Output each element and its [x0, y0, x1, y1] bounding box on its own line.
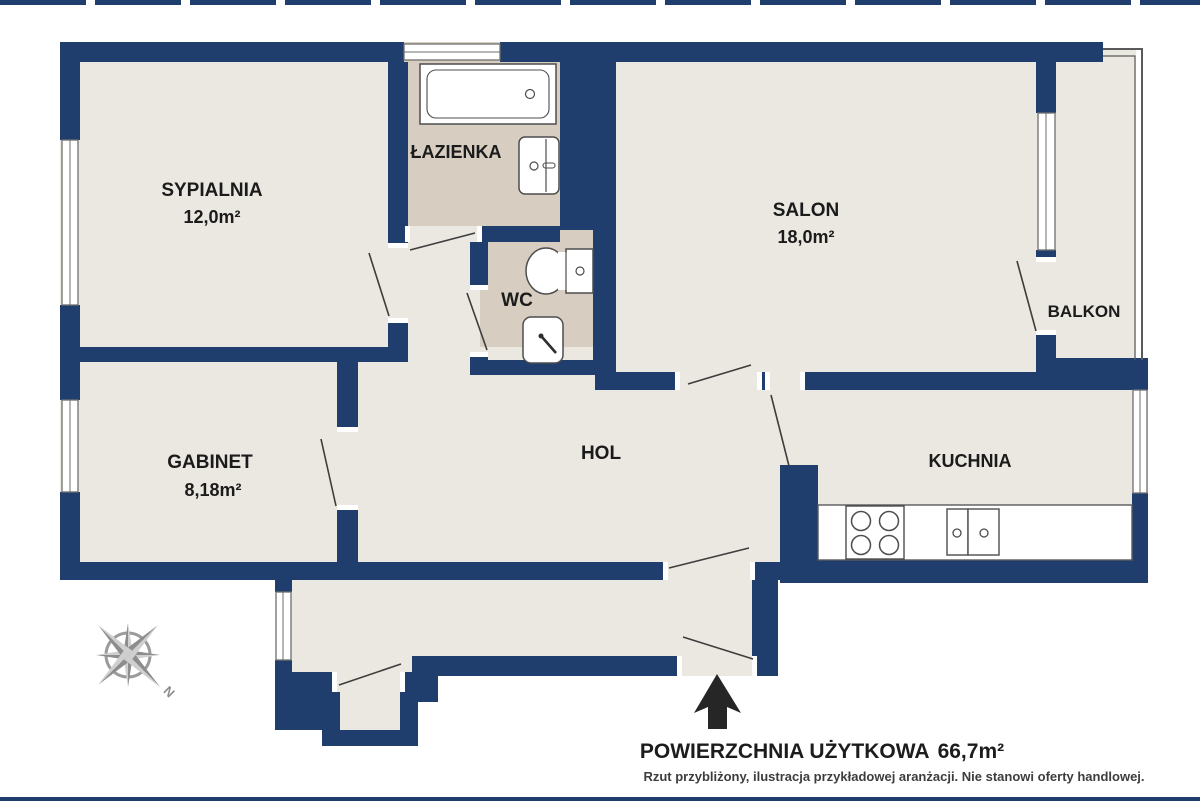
label-kuchnia: KUCHNIA: [929, 451, 1012, 471]
area-sypialnia: 12,0m²: [183, 207, 240, 227]
label-balkon: BALKON: [1048, 302, 1121, 321]
compass-north-label: N: [161, 683, 178, 700]
label-gabinet: GABINET: [167, 452, 253, 473]
footer: POWIERZCHNIA UŻYTKOWA66,7m² Rzut przybli…: [640, 740, 1145, 784]
room-floor-sypialnia: [60, 42, 412, 362]
bathroom-window: [404, 44, 500, 60]
toilet-icon: [526, 248, 593, 294]
entrance-arrow-icon: [694, 674, 741, 729]
kitchen-doorway-floor: [765, 372, 805, 390]
entrance-doorway-floor: [682, 656, 752, 676]
area-gabinet: 8,18m²: [184, 480, 241, 500]
label-lazienka: ŁAZIENKA: [411, 142, 502, 162]
label-wc: WC: [501, 290, 533, 311]
bathtub-icon: [420, 64, 556, 124]
label-salon: SALON: [773, 200, 840, 221]
area-salon: 18,0m²: [777, 227, 834, 247]
living-room-window: [1038, 113, 1055, 250]
bedroom-window: [62, 140, 78, 305]
room-floor-hol-center: [337, 347, 616, 580]
office-window: [62, 400, 78, 492]
usable-area-title: POWIERZCHNIA UŻYTKOWA66,7m²: [640, 740, 1004, 763]
vestibule-window: [276, 592, 291, 660]
label-sypialnia: SYPIALNIA: [161, 180, 263, 201]
label-hol: HOL: [581, 443, 622, 464]
floor-plan-page: SYPIALNIA 12,0m² ŁAZIENKA SALON 18,0m² B…: [0, 0, 1200, 801]
disclaimer-text: Rzut przybliżony, ilustracja przykładowe…: [643, 769, 1144, 784]
compass-rose-icon: N: [69, 596, 191, 718]
washbasin-icon: [519, 137, 559, 194]
kitchen-sink-icon: [947, 509, 999, 555]
washing-machine-icon: [523, 317, 563, 363]
kitchen-window: [1133, 390, 1147, 493]
room-floor-balkon: [1056, 50, 1136, 370]
stove-icon: [846, 506, 904, 559]
floor-plan-drawing: SYPIALNIA 12,0m² ŁAZIENKA SALON 18,0m² B…: [0, 0, 1200, 801]
